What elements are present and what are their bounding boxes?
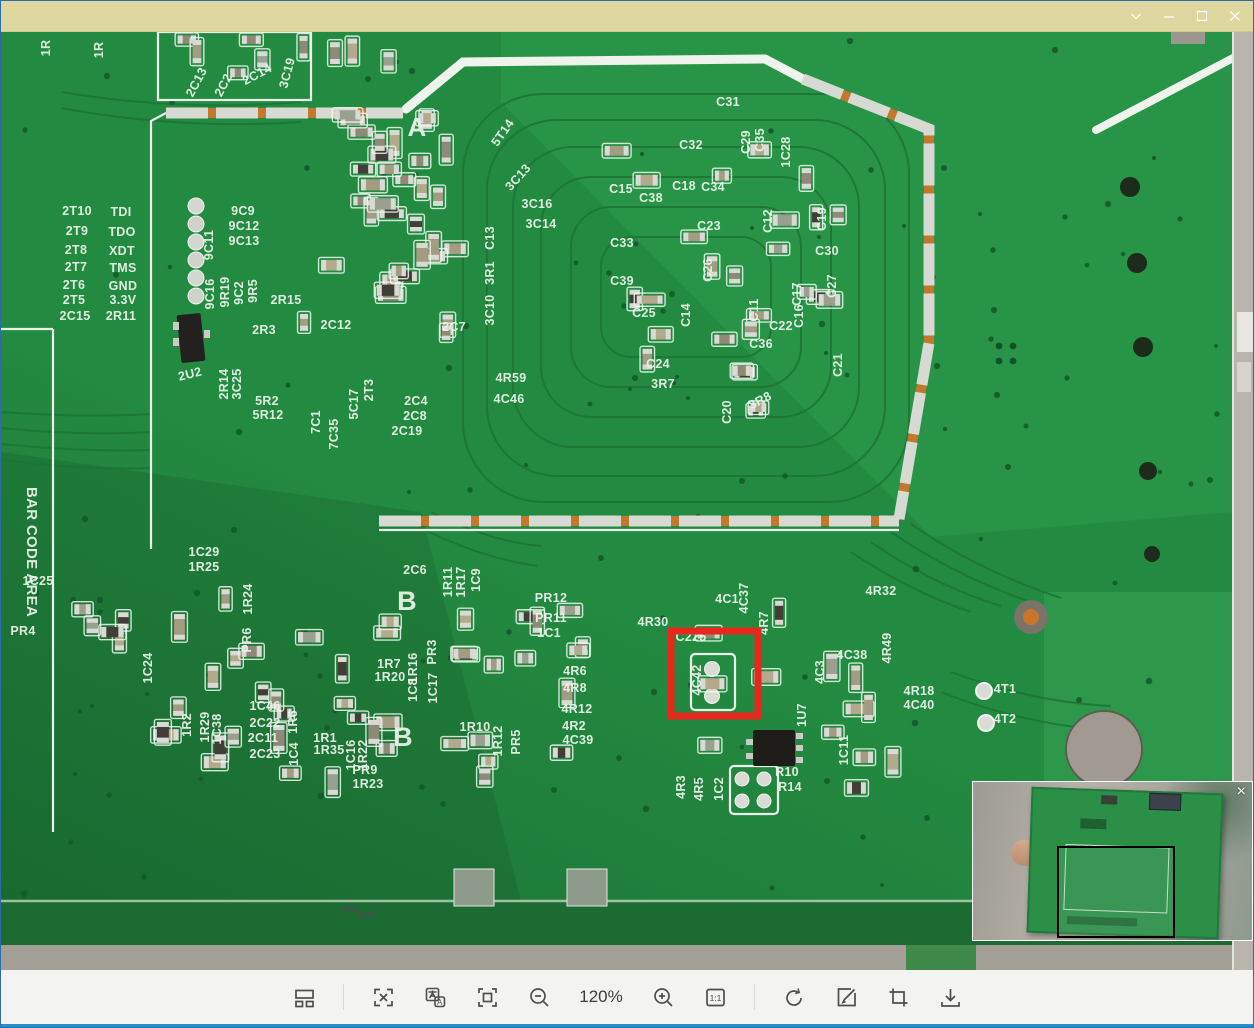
silkscreen-label: C20 [720,400,734,424]
silkscreen-label: 4C3 [813,660,827,684]
silkscreen-label: 4C38 [836,648,867,662]
silkscreen-label: C11 [747,298,761,321]
silkscreen-label: C18 [672,179,696,193]
smd-component [484,656,503,673]
silkscreen-label: 2R15 [270,293,301,307]
chevron-down-icon[interactable] [1124,4,1148,28]
silkscreen-label: 1U7 [795,703,809,727]
silkscreen-label: C33 [610,236,634,250]
navigator-thumbnail [973,782,1252,940]
silkscreen-label: 1C1 [537,626,561,640]
fit-screen-button[interactable] [474,984,500,1010]
silkscreen-label: 2R3 [252,323,276,337]
silkscreen-label: C23 [697,219,721,233]
silkscreen-label: 4R5 [692,777,706,801]
silkscreen-label: 9C9 [231,204,255,218]
navigator-panel[interactable]: × [972,781,1253,941]
silkscreen-label: 4T2 [994,712,1016,726]
silkscreen-label: C27 [825,274,839,298]
silkscreen-label: BAR CODE AREA [23,487,40,617]
silkscreen-label: 1R [92,42,106,59]
silkscreen-label: C31 [716,95,740,109]
silkscreen-label: 3C25 [230,368,244,399]
silkscreen-label: 2C6 [403,563,427,577]
silkscreen-label: C21 [831,353,845,377]
silkscreen-label: 1R24 [241,583,255,614]
silkscreen-label: 4C46 [493,392,524,406]
silkscreen-label: 2C19 [391,424,422,438]
silkscreen-label: 3C14 [525,217,556,231]
silkscreen-label: 7C35 [327,418,341,449]
smd-component [408,214,425,234]
silkscreen-label: XDT [109,244,135,258]
zoom-in-button[interactable] [650,984,676,1010]
silkscreen-label: 1C38 [210,713,224,744]
silkscreen-label: 2T8 [65,243,87,257]
silkscreen-label: 1C17 [426,672,440,703]
silkscreen-label: 4C42 [690,664,704,695]
crop-button[interactable] [885,984,911,1010]
silkscreen-label: 1R35 [313,743,344,757]
silkscreen-label: B [393,722,413,752]
toolbar-separator [754,984,755,1010]
silkscreen-label: 9C16 [203,278,217,309]
download-button[interactable] [937,984,963,1010]
silkscreen-label: C15 [609,182,633,196]
navigator-close-icon[interactable]: × [1237,784,1246,800]
viewer-toolbar: A 120% 1:1 [1,970,1253,1027]
silkscreen-label: 1C8 [406,678,420,702]
zoom-level-label[interactable]: 120% [578,987,624,1007]
translate-button[interactable]: A [422,984,448,1010]
silkscreen-label: C38 [639,191,663,205]
one-to-one-glyph: 1:1 [709,992,721,1002]
toolbar-separator [343,984,344,1010]
silkscreen-label: PR9 [352,763,377,777]
silkscreen-label: 1R6 [286,710,300,734]
silkscreen-label: 9C11 [202,230,216,260]
silkscreen-label: 1R7 [377,657,401,671]
maximize-button[interactable] [1190,4,1214,28]
actual-size-button[interactable]: 1:1 [702,984,728,1010]
silkscreen-label: 4C37 [737,582,751,613]
silkscreen-label: 1C29 [188,545,219,559]
silkscreen-label: C16 [792,304,806,328]
close-button[interactable] [1223,4,1247,28]
silkscreen-label: C19 [815,207,829,231]
silkscreen-label: B [397,586,417,616]
silkscreen-label: 1C28 [779,136,793,167]
silkscreen-label: 2T10 [62,204,92,218]
silkscreen-label: 2T3 [362,379,376,401]
silkscreen-label: 2C12 [320,318,351,332]
silkscreen-label: 1R [39,40,53,57]
silkscreen-label: 1R11 [441,567,455,597]
silkscreen-label: 1R20 [374,670,405,684]
ocr-extract-button[interactable] [370,984,396,1010]
silkscreen-label: C25 [632,306,656,320]
silkscreen-label: 4R8 [563,681,587,695]
silkscreen-label: PR12 [535,591,567,605]
silkscreen-label: 3R1 [483,261,497,285]
connector-small [1101,795,1117,805]
silkscreen-label: 1R25 [188,560,219,574]
silkscreen-label: 3R7 [651,377,675,391]
silkscreen-label: TDI [110,205,131,219]
viewport-rect[interactable] [1057,846,1175,938]
silkscreen-label: 2R14 [217,368,231,399]
silkscreen-label: C29 [739,130,753,154]
silkscreen-label: 2C22 [249,716,280,730]
silkscreen-label: C39 [610,274,634,288]
silkscreen-label: 4R3 [674,775,688,799]
silkscreen-label: 9R5 [246,279,260,303]
image-viewer-window: 1R1R2C132C22C143C195T143C133C163C142T10T… [0,0,1254,1028]
silkscreen-label: 4R59 [495,371,526,385]
silkscreen-label: C36 [749,337,773,351]
silkscreen-label: PR11 [535,611,567,625]
silkscreen-label: 1R12 [491,725,505,756]
silkscreen-label: 3C16 [521,197,552,211]
silkscreen-label: 2C8 [403,409,427,423]
translate-a-glyph: A [437,998,443,1007]
silkscreen-label: C12 [761,209,775,233]
silkscreen-label: 4R2 [562,719,586,733]
silkscreen-label: 2C23 [249,747,280,761]
silkscreen-label: 2C11 [248,731,278,745]
silkscreen-label: 4T1 [994,682,1016,696]
silkscreen-label: 2C15 [59,309,90,323]
silkscreen-label: GND [109,279,138,293]
silkscreen-label: 2T9 [66,224,88,238]
silkscreen-label: 4R6 [563,664,587,678]
silkscreen-label: 4C1 [715,592,739,606]
silkscreen-label: R10 [775,765,799,779]
silkscreen-label: 4R18 [903,684,934,698]
silkscreen-label: A [407,112,426,142]
silkscreen-label: 1C11 [837,735,851,765]
silkscreen-label: 7C1 [309,410,323,434]
silkscreen-label: 1C9 [469,568,483,592]
layout-panels-button[interactable] [291,984,317,1010]
silkscreen-label: 1R10 [459,720,490,734]
silkscreen-label: 9C13 [228,234,259,248]
silkscreen-label: C24 [646,357,670,371]
photo-canvas[interactable]: 1R1R2C132C22C143C195T143C133C163C142T10T… [1,32,1253,970]
silkscreen-label: 2R11 [106,309,136,323]
silkscreen-label: 2C4 [404,394,428,408]
silkscreen-label: TMS [109,261,136,275]
silkscreen-label: PR5 [509,729,523,754]
silkscreen-label: 4R32 [865,584,896,598]
silkscreen-label: C17 [790,282,804,306]
silkscreen-label: 4C40 [903,698,934,712]
window-controls [1124,1,1247,31]
silkscreen-label: PR4 [10,624,35,638]
silkscreen-label: 1R23 [352,777,383,791]
silkscreen-label: 1C4 [287,742,301,766]
silkscreen-label: 3.3V [110,293,137,307]
silkscreen-label: 5R12 [252,408,283,422]
silkscreen-label: 3C10 [483,294,497,325]
silkscreen-label: 4C39 [562,733,593,747]
edit-button[interactable] [833,984,859,1010]
silkscreen-label: 2T5 [63,293,85,307]
silkscreen-label: C34 [701,180,725,194]
silkscreen-label: TDO [108,225,135,239]
silkscreen-label: PR6 [240,627,254,652]
zoom-out-button[interactable] [526,984,552,1010]
silkscreen-label: C26 [701,258,715,282]
silkscreen-label: 9C12 [228,219,259,233]
silkscreen-label: C14 [679,303,693,327]
silkscreen-label: 1C46 [249,699,280,713]
rotate-button[interactable] [781,984,807,1010]
silkscreen-label: PR3 [425,639,439,664]
silkscreen-label: C22 [769,319,793,333]
silkscreen-label: 2T6 [63,278,85,292]
silkscreen-label: 1R17 [454,566,468,597]
silkscreen-label: 1R2 [180,713,194,737]
silkscreen-label: 4R49 [880,632,894,663]
silkscreen-label: 5C17 [347,388,361,419]
silkscreen-label: R14 [778,780,802,794]
silkscreen-label: 9R19 [218,276,232,307]
connector [1149,793,1182,811]
smd-component [154,719,171,745]
silkscreen-label: C30 [815,244,839,258]
minimize-button[interactable] [1157,4,1181,28]
silkscreen-label: 9C2 [232,281,246,305]
titlebar [1,1,1253,32]
silkscreen-label: C13 [483,226,497,250]
silkscreen-label: 1C2 [712,777,726,801]
silkscreen-label: C35 [753,128,767,152]
silkscreen-label: 4R12 [561,702,592,716]
silkscreen-label: C32 [679,138,703,152]
silkscreen-label: 4R30 [637,615,668,629]
silkscreen-label: 1C24 [141,652,155,683]
silkscreen-label: 5R2 [255,394,279,408]
silkscreen-label: 2T7 [65,260,87,274]
silkscreen-label: 2C7 [442,320,466,334]
component-speck [1080,818,1106,829]
